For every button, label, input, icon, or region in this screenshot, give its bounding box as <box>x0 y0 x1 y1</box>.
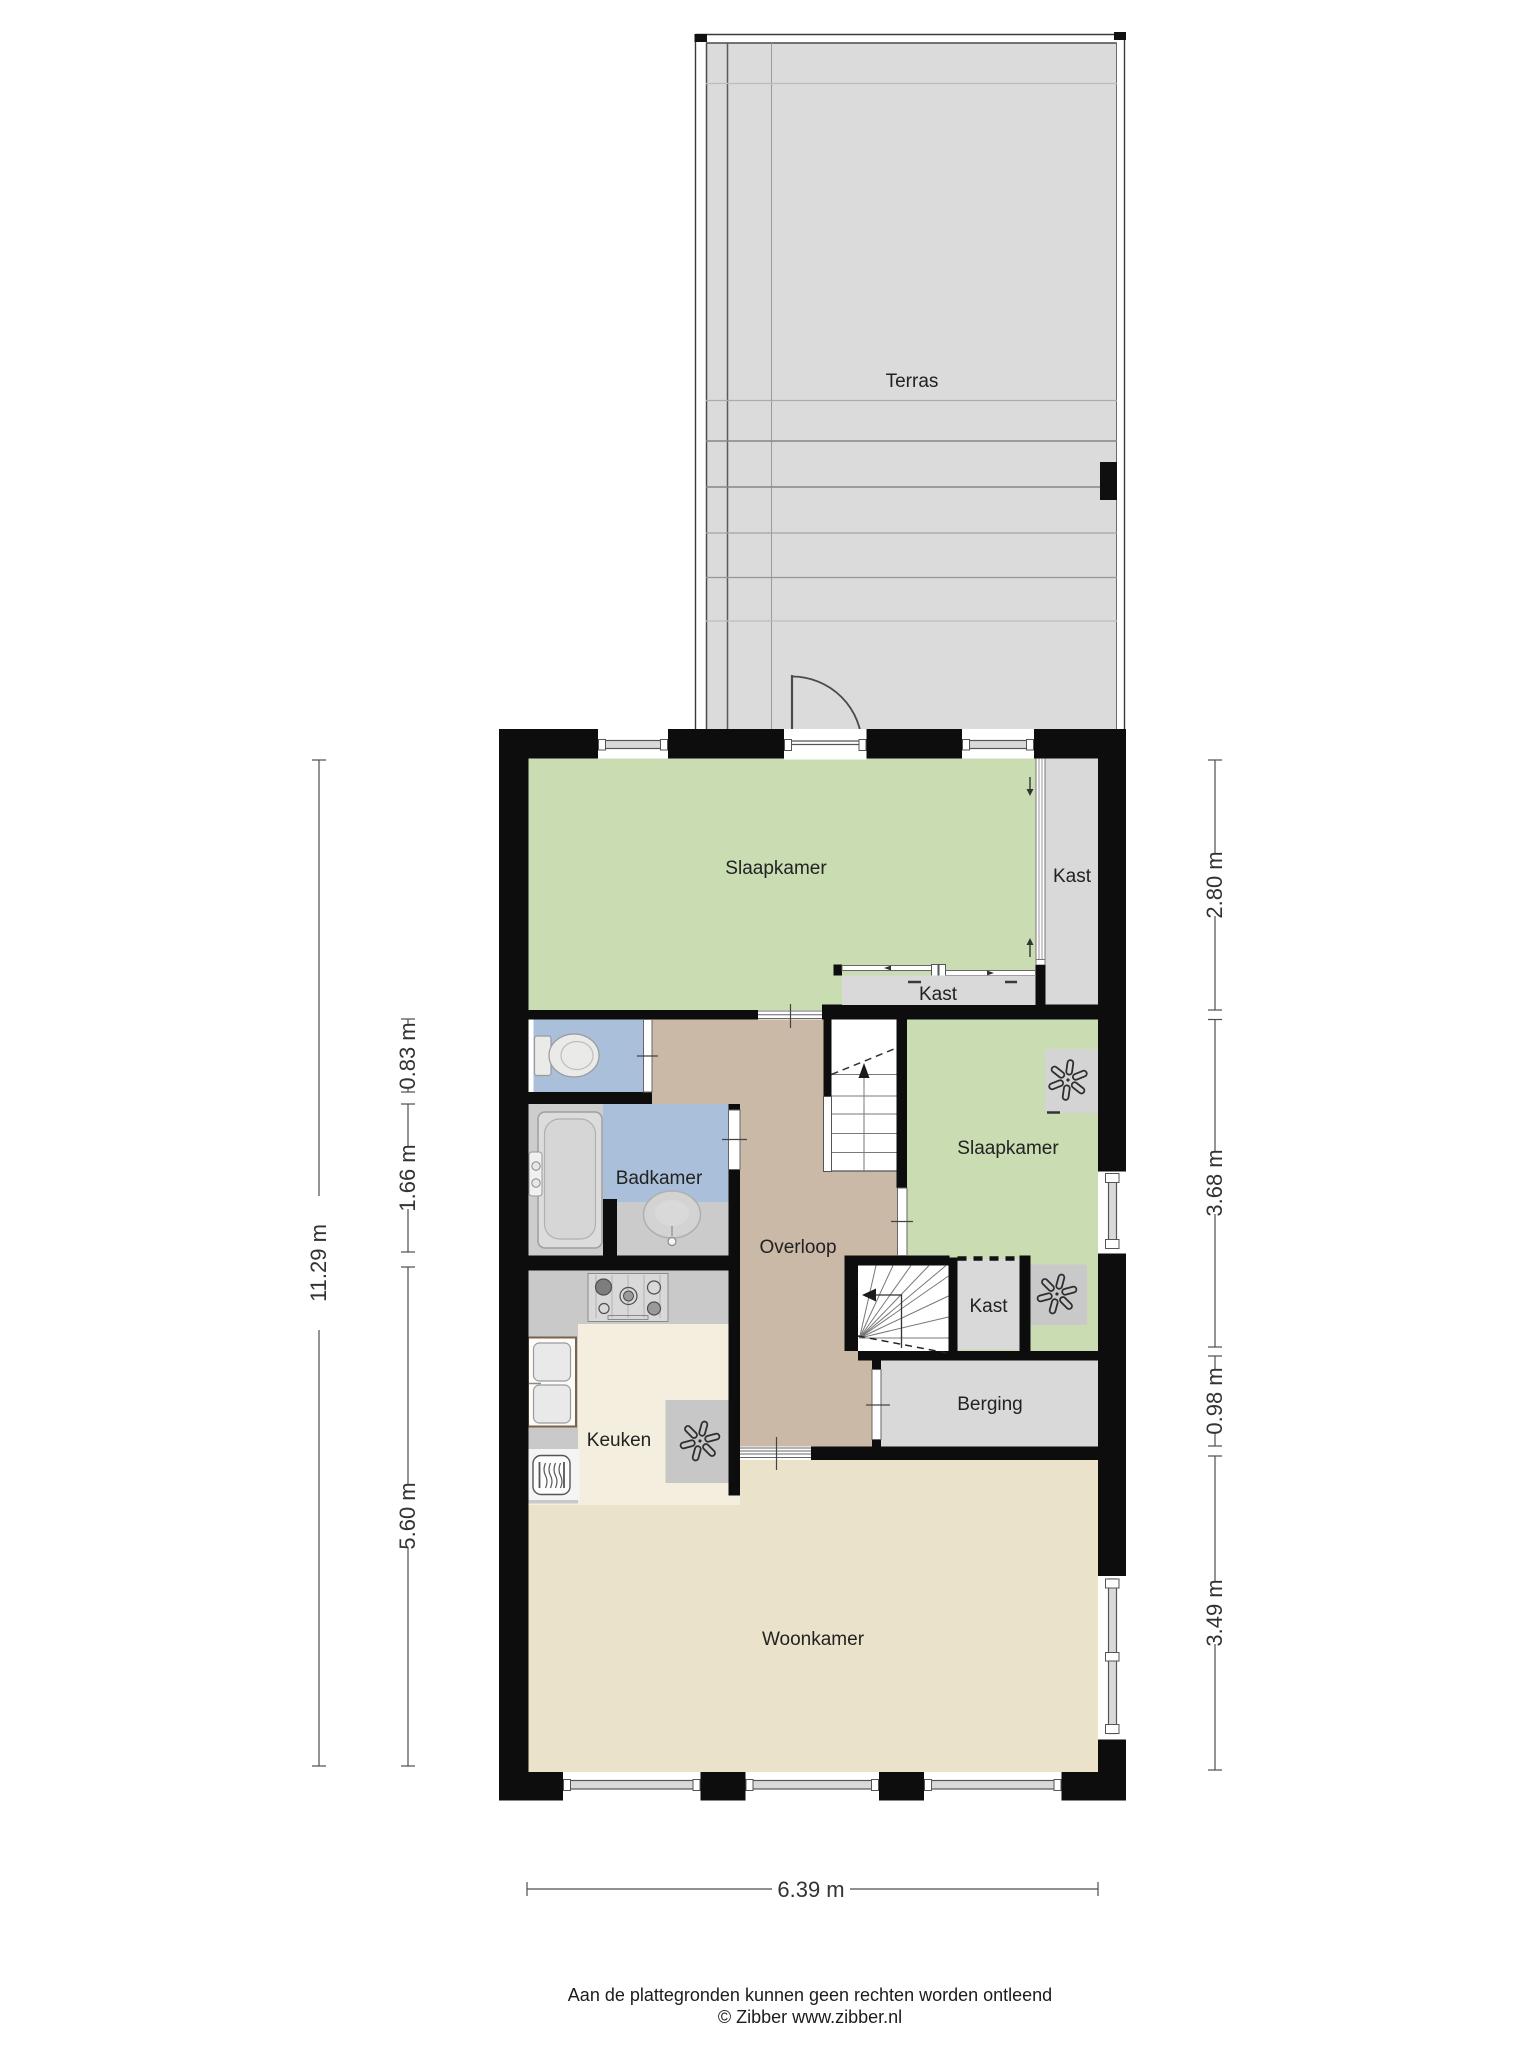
svg-text:2.80 m: 2.80 m <box>1202 851 1227 918</box>
svg-text:11.29 m: 11.29 m <box>306 1224 331 1302</box>
svg-text:Aan de plattegronden kunnen ge: Aan de plattegronden kunnen geen rechten… <box>568 1985 1052 2005</box>
svg-text:Terras: Terras <box>886 371 939 392</box>
svg-text:5.60 m: 5.60 m <box>395 1482 420 1549</box>
svg-text:Slaapkamer: Slaapkamer <box>725 858 827 879</box>
svg-text:Kast: Kast <box>969 1296 1008 1317</box>
svg-text:Woonkamer: Woonkamer <box>762 1629 865 1650</box>
svg-text:Kast: Kast <box>1053 866 1092 887</box>
svg-text:Kast: Kast <box>919 984 958 1005</box>
svg-text:3.68 m: 3.68 m <box>1202 1149 1227 1216</box>
svg-text:3.49 m: 3.49 m <box>1202 1579 1227 1646</box>
svg-text:0.98 m: 0.98 m <box>1202 1367 1227 1434</box>
svg-text:Badkamer: Badkamer <box>616 1168 703 1189</box>
svg-text:6.39 m: 6.39 m <box>777 1877 844 1902</box>
svg-text:Keuken: Keuken <box>587 1430 651 1451</box>
svg-text:© Zibber www.zibber.nl: © Zibber www.zibber.nl <box>718 2007 902 2027</box>
svg-text:Slaapkamer: Slaapkamer <box>957 1138 1059 1159</box>
svg-text:0.83 m: 0.83 m <box>395 1022 420 1089</box>
svg-text:Overloop: Overloop <box>759 1237 836 1258</box>
svg-text:1.66 m: 1.66 m <box>395 1144 420 1211</box>
svg-text:Berging: Berging <box>957 1394 1023 1415</box>
